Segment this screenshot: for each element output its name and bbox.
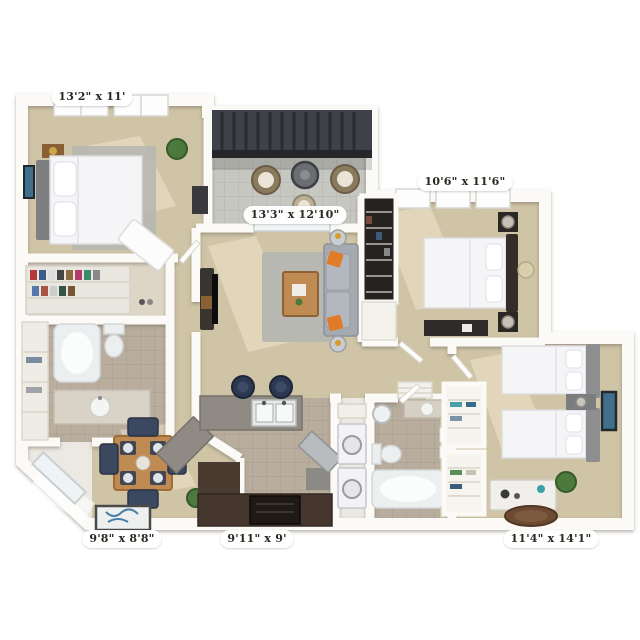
lamp: [502, 216, 514, 228]
oven: [250, 496, 300, 524]
pillow: [486, 244, 502, 270]
pillow: [54, 162, 76, 196]
shelf: [338, 404, 366, 418]
faucet: [98, 396, 102, 400]
tray-table: [518, 262, 534, 278]
lamp: [49, 147, 57, 155]
pillow: [54, 202, 76, 236]
dimension-label-bedroom-bottom-right: 11'4" x 14'1": [504, 530, 599, 548]
pillow: [566, 350, 582, 368]
sink: [421, 403, 434, 416]
lamp: [502, 316, 514, 328]
wall-art: [602, 392, 616, 430]
pillow: [566, 372, 582, 390]
pillow: [566, 436, 582, 454]
linen-closet: [444, 384, 484, 446]
wardrobe: [192, 186, 208, 214]
pergola-beam: [212, 150, 372, 158]
toilet: [105, 335, 123, 357]
plant: [167, 139, 187, 159]
dimension-label-bedroom-top-left: 13'2" x 11': [51, 88, 132, 106]
toilet: [381, 446, 401, 463]
wall-art: [24, 166, 34, 198]
dimension-label-living-room: 13'3" x 12'10": [244, 206, 347, 224]
dimension-label-dining: 9'8" x 8'8": [82, 530, 161, 548]
dimension-label-bedroom-top-right: 10'6" x 11'6": [418, 173, 513, 191]
dimension-label-kitchen: 9'11" x 9': [220, 530, 293, 548]
pillow: [566, 414, 582, 432]
headboard: [586, 344, 600, 398]
pillow: [486, 276, 502, 302]
plant: [556, 472, 576, 492]
faucet: [262, 401, 266, 405]
linen-closet: [444, 452, 484, 514]
lamp: [576, 397, 586, 407]
faucet: [282, 401, 286, 405]
pergola-canopy: [212, 110, 372, 156]
headboard: [36, 160, 50, 240]
cabinet-tall: [198, 462, 240, 496]
window: [396, 189, 510, 208]
headboard: [506, 234, 518, 312]
doormat: [96, 506, 150, 530]
headboard: [586, 408, 600, 462]
toilet-tank: [104, 324, 124, 334]
towel: [26, 357, 42, 363]
dresser: [424, 320, 488, 336]
dining-chair: [100, 444, 118, 474]
round-mirror: [373, 405, 391, 423]
floor-plan-canvas: 13'2" x 11' 13'3" x 12'10" 10'6" x 11'6"…: [0, 0, 640, 640]
tv: [212, 274, 218, 324]
towel: [26, 387, 42, 393]
dining-chair: [128, 418, 158, 436]
toilet-tank: [372, 444, 381, 464]
closet-door: [362, 302, 396, 340]
linen-shelves: [22, 322, 48, 440]
